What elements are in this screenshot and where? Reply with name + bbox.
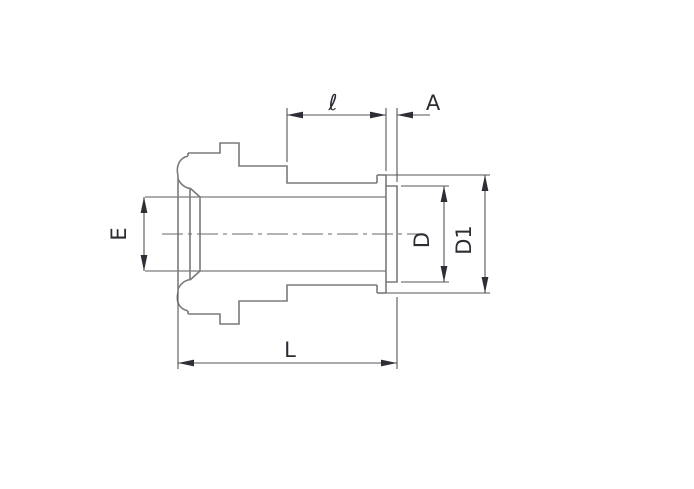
arrow-neck-left bbox=[287, 112, 303, 119]
arrow-bore-up bbox=[141, 197, 148, 213]
dimension-arrows bbox=[141, 112, 489, 367]
arrow-socket-down bbox=[441, 266, 448, 282]
ring-arc-bottom bbox=[178, 280, 190, 290]
arrow-overall-left bbox=[178, 360, 194, 367]
arrow-overall-right bbox=[381, 360, 397, 367]
ring-arc-top bbox=[178, 179, 190, 189]
bulge-arc-top bbox=[177, 156, 188, 176]
throat-chamfer-bottom bbox=[190, 271, 200, 280]
arrow-flange-up bbox=[482, 175, 489, 191]
dimension-lines bbox=[144, 108, 490, 369]
fitting-diagram-canvas: ℓ A E D D1 L bbox=[0, 0, 694, 489]
bulge-arc-bottom bbox=[177, 292, 188, 311]
throat-chamfer-top bbox=[190, 188, 200, 197]
label-neck-length: ℓ bbox=[327, 91, 337, 116]
label-bore-diameter: E bbox=[107, 227, 131, 240]
label-flange-diameter: D1 bbox=[452, 225, 476, 255]
drawing-page: ℓ A E D D1 L bbox=[0, 0, 694, 489]
arrow-flange-down bbox=[482, 277, 489, 293]
arrow-bore-down bbox=[141, 255, 148, 271]
arrow-socket-up bbox=[441, 186, 448, 202]
arrow-end-thickness bbox=[397, 112, 413, 119]
label-overall-length: L bbox=[284, 338, 296, 362]
label-end-thickness: A bbox=[426, 91, 441, 115]
arrow-neck-right bbox=[370, 112, 386, 119]
hex-top-profile bbox=[188, 143, 377, 183]
hex-bottom-profile bbox=[188, 285, 377, 324]
label-socket-diameter: D bbox=[410, 232, 434, 248]
